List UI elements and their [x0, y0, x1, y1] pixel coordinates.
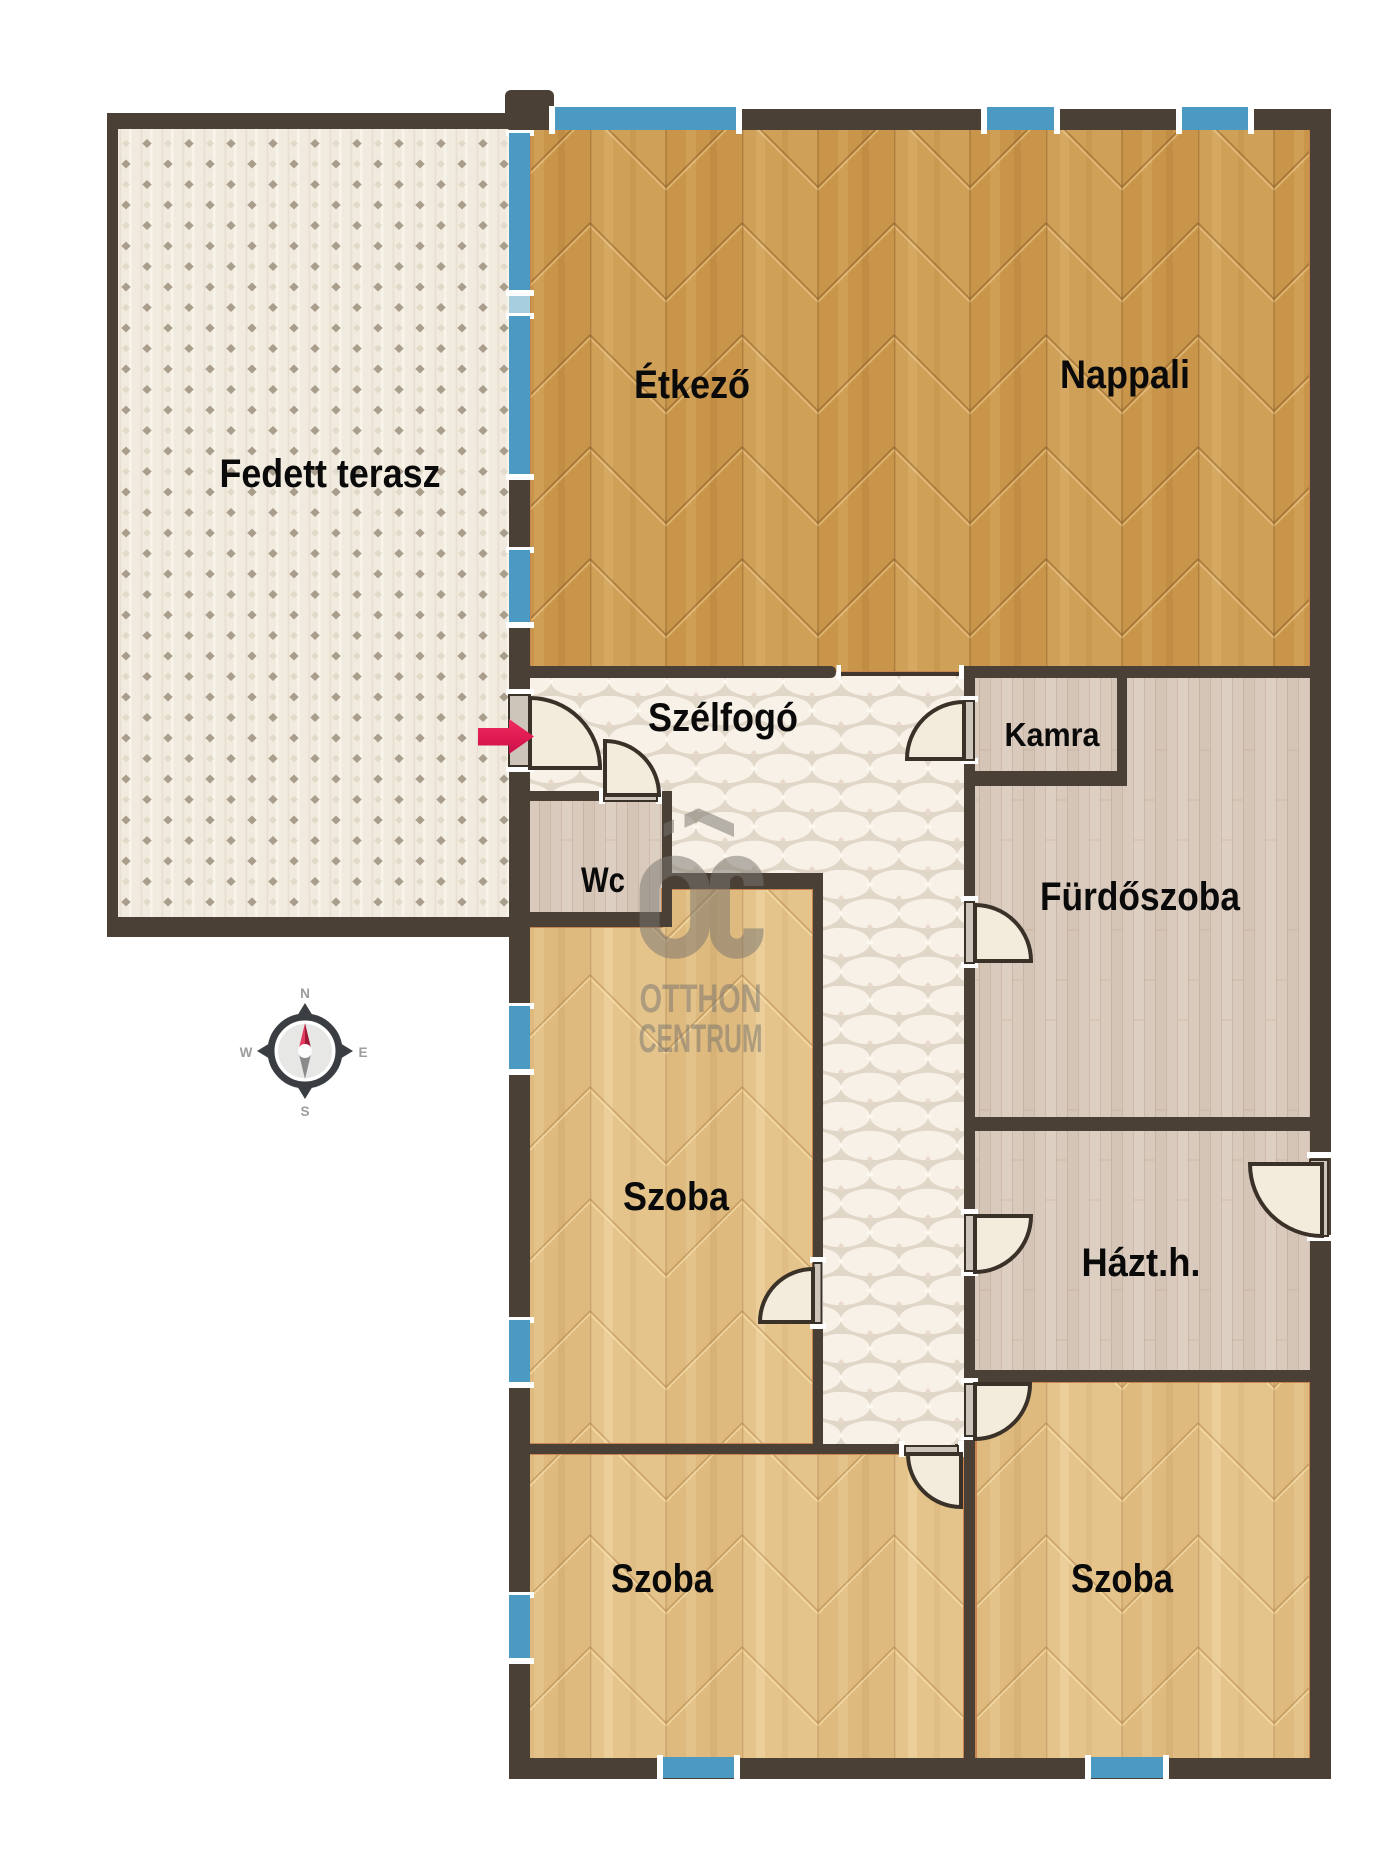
svg-text:Étkező: Étkező: [634, 362, 750, 407]
svg-text:Házt.h.: Házt.h.: [1082, 1241, 1201, 1285]
svg-text:S: S: [300, 1104, 309, 1119]
svg-text:Kamra: Kamra: [1005, 716, 1101, 753]
svg-text:N: N: [300, 986, 310, 1001]
svg-text:Fedett terasz: Fedett terasz: [220, 452, 441, 496]
svg-text:Szoba: Szoba: [611, 1557, 714, 1601]
svg-text:E: E: [358, 1045, 367, 1060]
svg-text:Szélfogó: Szélfogó: [648, 696, 798, 740]
svg-text:OTTHON: OTTHON: [640, 977, 762, 1021]
svg-text:W: W: [240, 1045, 253, 1060]
svg-text:Wc: Wc: [581, 861, 625, 900]
svg-text:Szoba: Szoba: [623, 1175, 730, 1219]
svg-text:Nappali: Nappali: [1060, 353, 1190, 397]
svg-text:Fürdőszoba: Fürdőszoba: [1040, 875, 1241, 919]
svg-text:CENTRUM: CENTRUM: [639, 1017, 763, 1061]
svg-text:Szoba: Szoba: [1071, 1557, 1174, 1601]
